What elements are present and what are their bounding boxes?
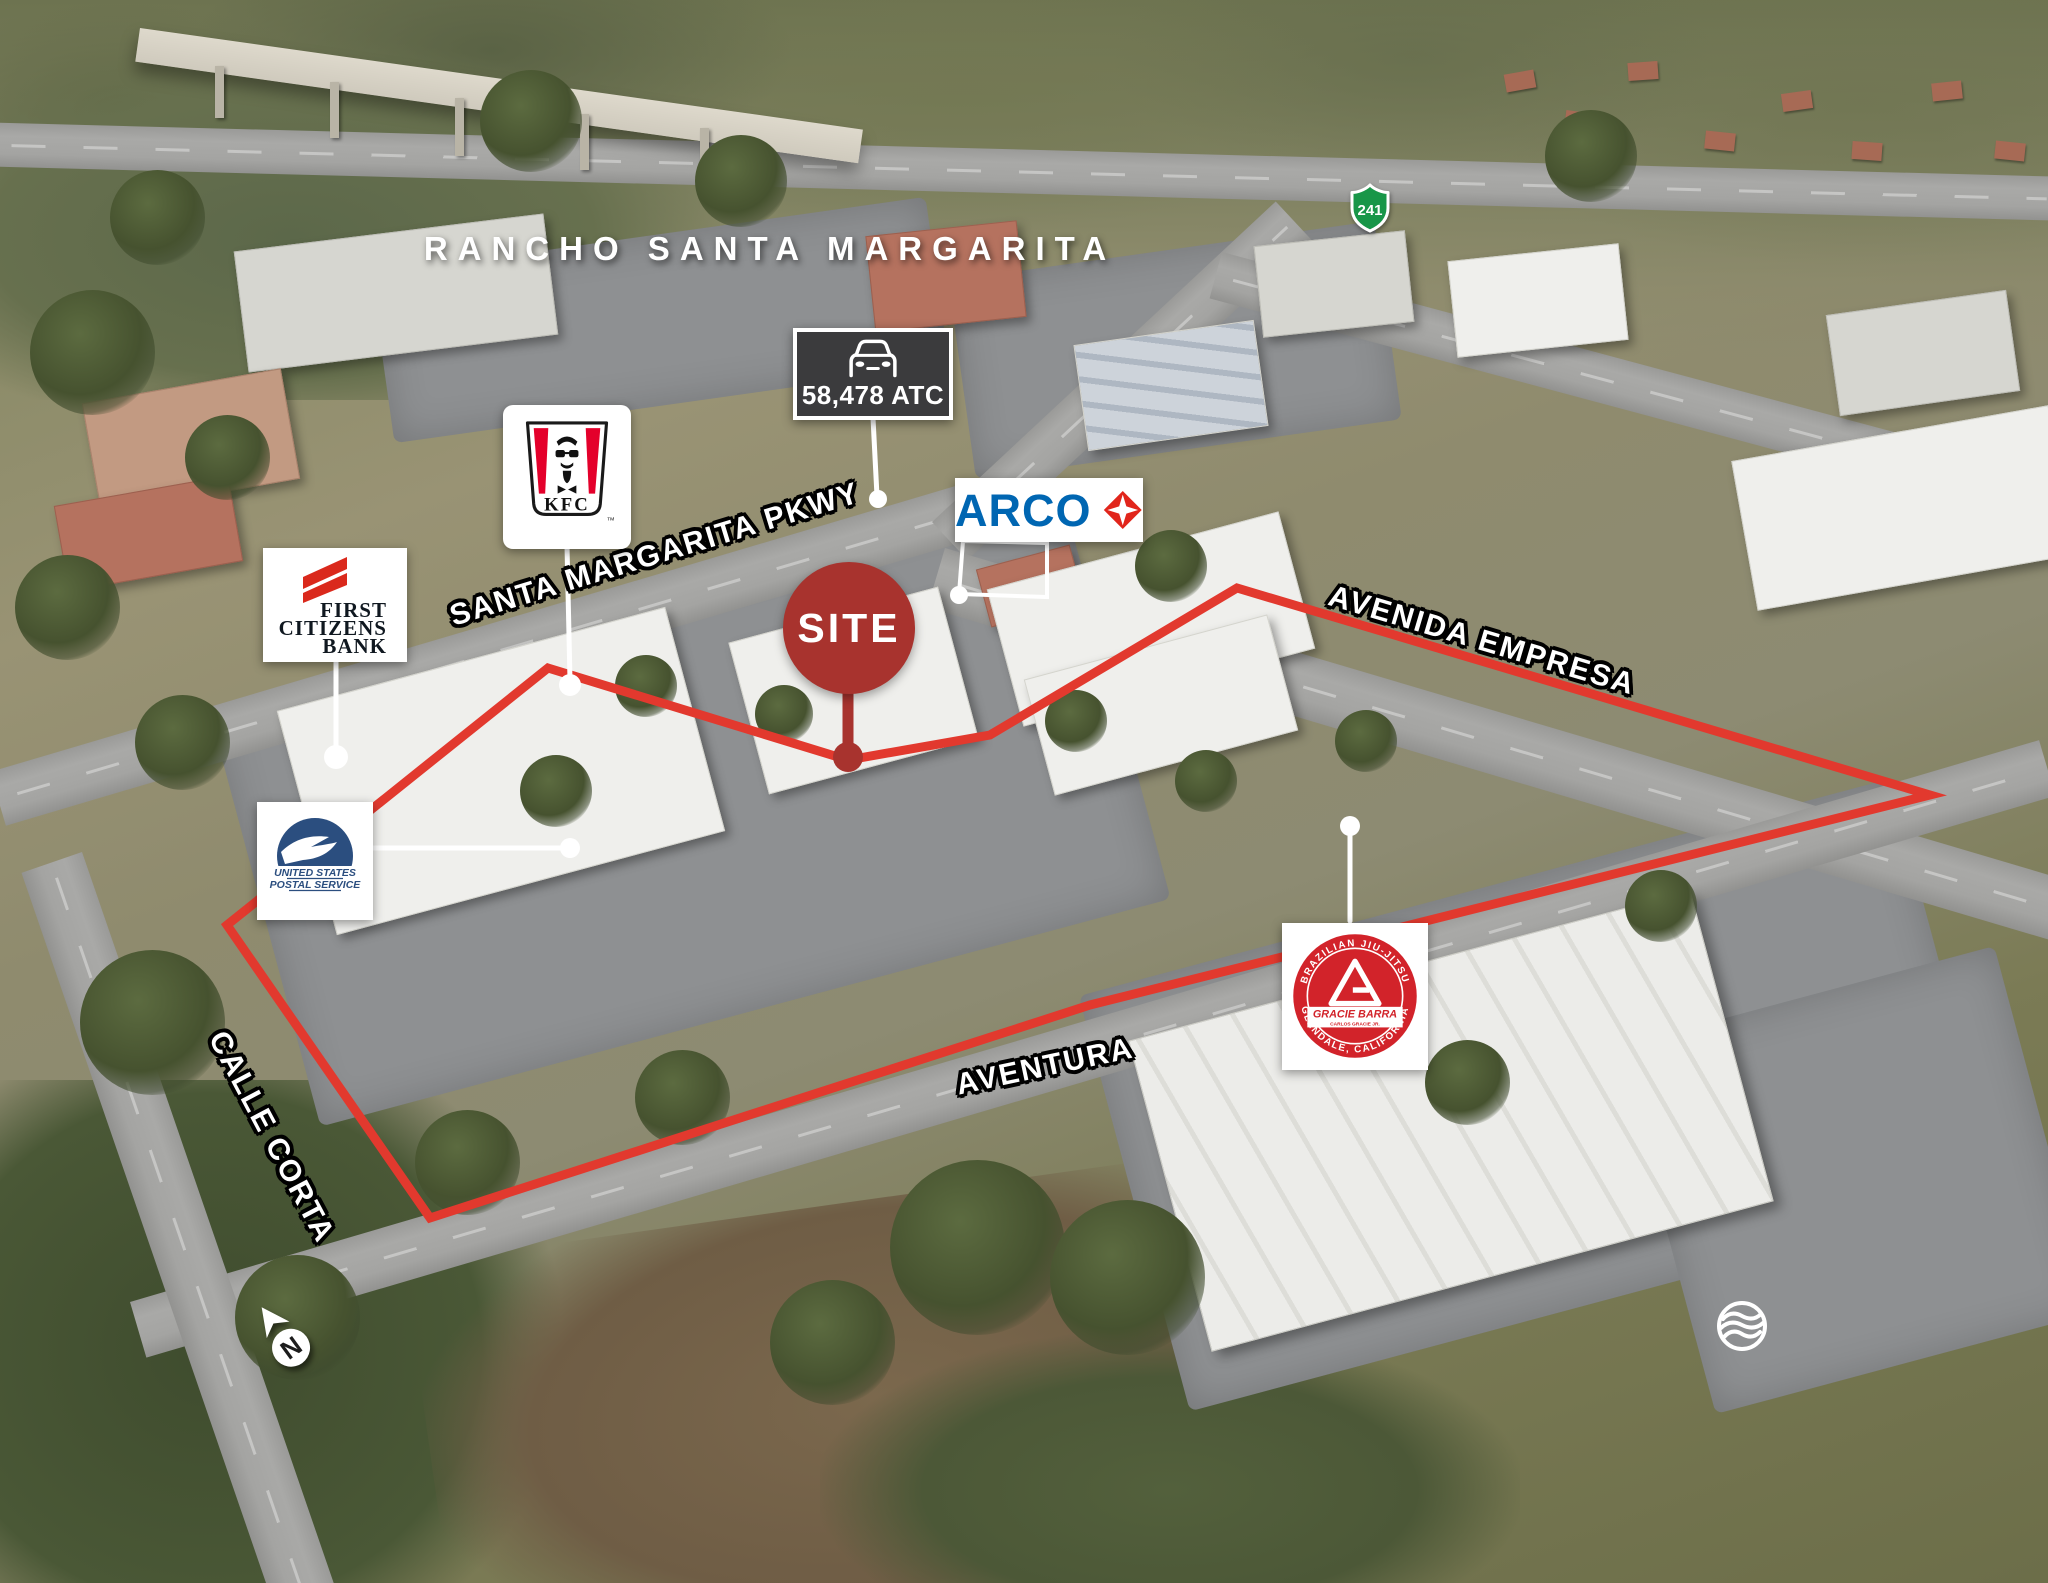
arco-wordmark: ARCO <box>955 488 1092 533</box>
property-boundary <box>227 588 1930 1218</box>
gb-subband-text: CARLOS GRACIE JR. <box>1330 1021 1380 1027</box>
kfc-wordmark: KFC <box>544 494 590 515</box>
route-number: 241 <box>1357 202 1382 219</box>
first-citizens-flag-icon <box>299 554 351 604</box>
region-label: RANCHO SANTA MARGARITA <box>420 230 1120 268</box>
site-marker: SITE <box>783 562 915 694</box>
traffic-count-badge: 58,478 ATC <box>793 328 953 420</box>
gracie-barra-logo: BRAZILIAN JIU-JITSU GLENDALE, CALIFORNIA… <box>1290 931 1420 1061</box>
kfc-trademark: ™ <box>607 515 615 525</box>
kfc-callout: KFC ™ <box>503 405 631 549</box>
wave-globe-logo-icon <box>1714 1298 1770 1354</box>
usps-callout: UNITED STATES POSTAL SERVICE <box>257 802 373 920</box>
usps-eagle-icon: UNITED STATES POSTAL SERVICE <box>265 808 365 912</box>
leader-first-citizens-bank <box>324 660 348 769</box>
kfc-logo-icon: KFC ™ <box>515 413 619 541</box>
arco-spark-icon <box>1102 487 1144 533</box>
site-marker-stem <box>833 692 863 772</box>
traffic-count-value: 58,478 ATC <box>802 380 944 411</box>
route-241-shield: 241 <box>1348 182 1392 234</box>
car-icon <box>841 337 905 379</box>
leader-arco <box>950 541 1047 604</box>
site-label: SITE <box>797 605 900 652</box>
leader-usps <box>373 838 580 858</box>
gracie-barra-callout: BRAZILIAN JIU-JITSU GLENDALE, CALIFORNIA… <box>1282 923 1428 1070</box>
gb-band-text: GRACIE BARRA <box>1313 1009 1397 1021</box>
first-citizens-bank-callout: FIRST CITIZENS BANK <box>263 548 407 662</box>
arco-callout: ARCO <box>955 478 1143 542</box>
usps-line1: UNITED STATES <box>274 867 356 879</box>
aerial-map: SITE RANCHO SANTA MARGARITA SANTA MARGAR… <box>0 0 2048 1583</box>
leader-gracie-barra <box>1340 816 1360 921</box>
fcb-line3: BANK <box>322 636 387 657</box>
usps-line2: POSTAL SERVICE <box>270 879 362 891</box>
north-arrow: N <box>252 1296 316 1380</box>
